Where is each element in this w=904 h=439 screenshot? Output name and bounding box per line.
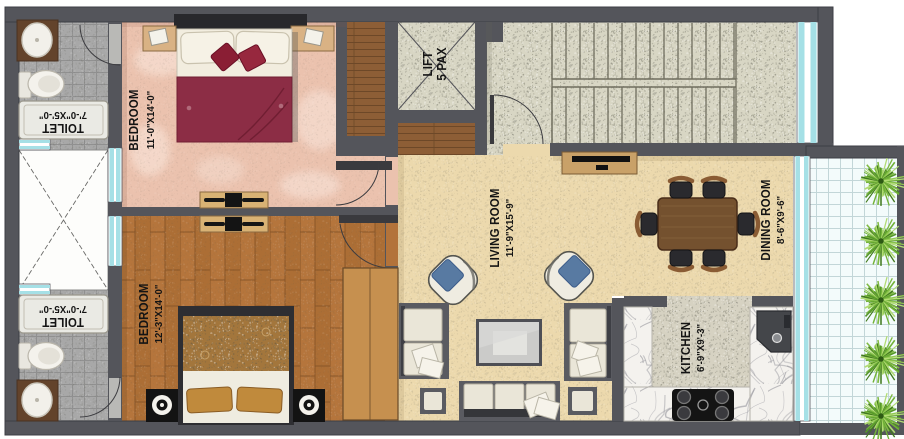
svg-text:12'-3"X14'-0": 12'-3"X14'-0" [154, 284, 165, 343]
svg-text:KITCHEN: KITCHEN [679, 322, 694, 374]
svg-text:DINING ROOM: DINING ROOM [759, 179, 774, 260]
svg-text:BEDROOM: BEDROOM [137, 283, 152, 344]
svg-text:6'-9"X9'-3": 6'-9"X9'-3" [696, 324, 707, 372]
svg-text:7'-0"X5'-0": 7'-0"X5'-0" [39, 109, 87, 120]
svg-text:LIVING ROOM: LIVING ROOM [488, 188, 503, 267]
svg-text:TOILET: TOILET [42, 121, 84, 136]
svg-text:LIFT: LIFT [421, 51, 436, 76]
svg-text:5 PAX: 5 PAX [435, 47, 450, 80]
svg-text:11'-9"X15'-9": 11'-9"X15'-9" [505, 199, 516, 257]
svg-text:11'-0"X14'-0": 11'-0"X14'-0" [146, 91, 157, 149]
svg-text:TOILET: TOILET [42, 315, 84, 330]
svg-text:7'-0"X5'-0": 7'-0"X5'-0" [39, 303, 87, 314]
svg-text:8'-6"X9'-6": 8'-6"X9'-6" [776, 196, 787, 244]
svg-text:BEDROOM: BEDROOM [127, 89, 142, 150]
